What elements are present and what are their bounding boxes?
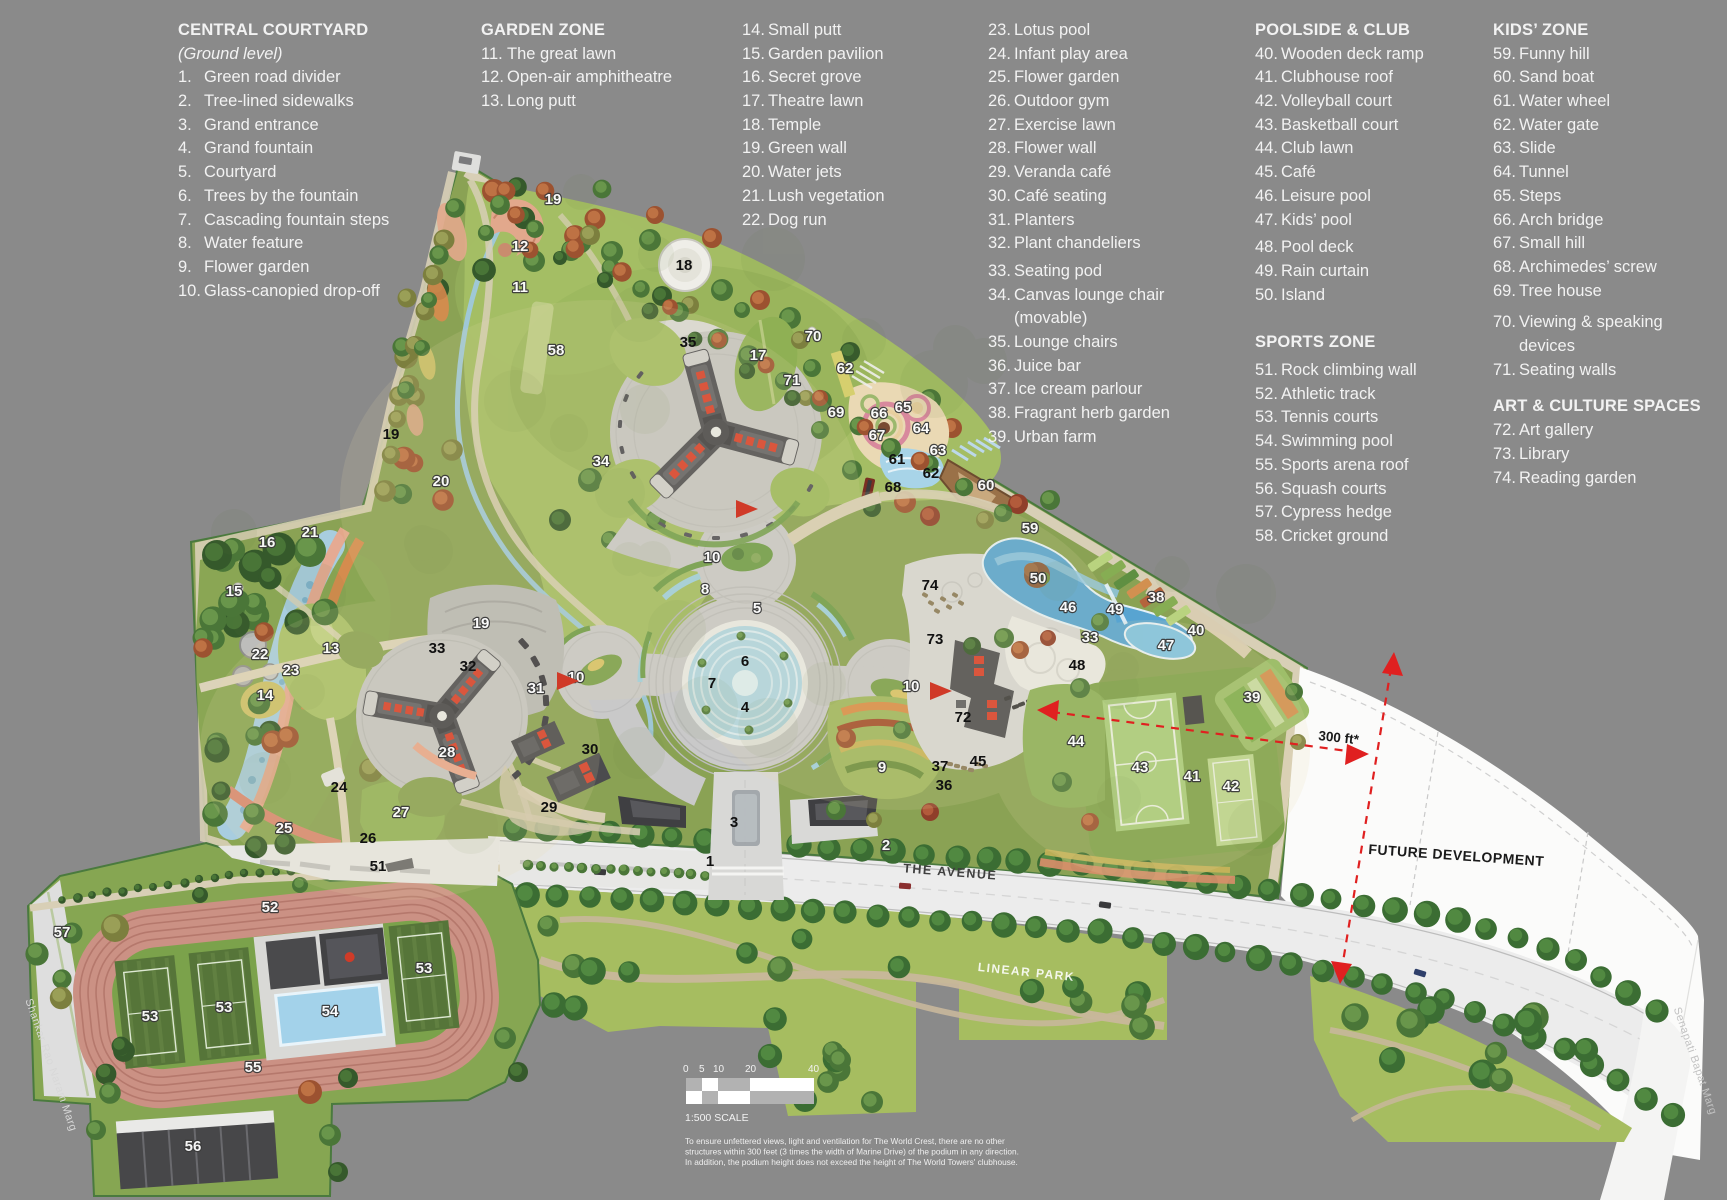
- svg-text:14: 14: [257, 687, 274, 704]
- svg-text:28: 28: [439, 744, 456, 761]
- svg-text:33: 33: [1082, 629, 1099, 646]
- svg-text:1:500 SCALE: 1:500 SCALE: [685, 1112, 749, 1124]
- svg-text:35: 35: [680, 334, 697, 351]
- svg-text:19: 19: [545, 191, 562, 208]
- svg-text:structures within 300 feet (3: structures within 300 feet (3 times the …: [685, 1147, 1019, 1157]
- svg-text:57: 57: [54, 924, 71, 941]
- svg-text:40: 40: [808, 1064, 820, 1075]
- svg-text:1: 1: [706, 853, 714, 870]
- svg-text:10: 10: [704, 549, 721, 566]
- svg-text:16: 16: [259, 534, 276, 551]
- svg-text:67: 67: [869, 427, 886, 444]
- svg-text:39: 39: [1244, 689, 1261, 706]
- svg-text:3: 3: [730, 814, 738, 831]
- svg-text:53: 53: [216, 999, 233, 1016]
- svg-text:72: 72: [955, 709, 972, 726]
- svg-text:12: 12: [512, 238, 529, 255]
- svg-text:6: 6: [741, 653, 749, 670]
- svg-text:5: 5: [753, 600, 761, 617]
- svg-text:0: 0: [683, 1064, 689, 1075]
- svg-text:58: 58: [548, 342, 565, 359]
- svg-text:68: 68: [885, 479, 902, 496]
- svg-text:74: 74: [922, 577, 939, 594]
- svg-text:40: 40: [1188, 622, 1205, 639]
- svg-text:42: 42: [1223, 778, 1240, 795]
- svg-text:41: 41: [1184, 768, 1201, 785]
- svg-text:61: 61: [889, 451, 906, 468]
- svg-text:62: 62: [923, 465, 940, 482]
- svg-text:43: 43: [1132, 759, 1149, 776]
- svg-text:24: 24: [331, 779, 348, 796]
- svg-text:45: 45: [970, 753, 987, 770]
- svg-text:73: 73: [927, 631, 944, 648]
- svg-text:11: 11: [512, 279, 528, 296]
- svg-text:2: 2: [882, 837, 890, 854]
- svg-text:19: 19: [473, 615, 490, 632]
- svg-text:20: 20: [745, 1064, 757, 1075]
- svg-text:31: 31: [528, 680, 545, 697]
- svg-text:In addition, the podium height: In addition, the podium height does not …: [685, 1157, 1018, 1167]
- svg-text:38: 38: [1148, 589, 1165, 606]
- svg-text:21: 21: [302, 524, 319, 541]
- svg-text:53: 53: [142, 1008, 159, 1025]
- svg-text:46: 46: [1060, 599, 1077, 616]
- svg-text:59: 59: [1022, 520, 1039, 537]
- svg-text:60: 60: [978, 477, 995, 494]
- svg-text:63: 63: [930, 442, 947, 459]
- svg-text:17: 17: [750, 347, 767, 364]
- svg-text:51: 51: [370, 858, 387, 875]
- svg-text:22: 22: [252, 646, 269, 663]
- svg-text:50: 50: [1030, 570, 1047, 587]
- svg-text:53: 53: [416, 960, 433, 977]
- svg-text:To ensure unfettered views, li: To ensure unfettered views, light and ve…: [685, 1136, 1005, 1146]
- svg-text:69: 69: [828, 404, 845, 421]
- svg-text:4: 4: [741, 699, 750, 716]
- svg-text:56: 56: [185, 1138, 202, 1155]
- svg-text:10: 10: [903, 678, 920, 695]
- svg-text:15: 15: [226, 583, 243, 600]
- svg-text:70: 70: [805, 328, 822, 345]
- svg-text:10: 10: [713, 1064, 725, 1075]
- svg-text:62: 62: [837, 360, 854, 377]
- svg-text:55: 55: [245, 1059, 262, 1076]
- svg-text:44: 44: [1068, 733, 1085, 750]
- svg-text:49: 49: [1107, 601, 1124, 618]
- svg-text:65: 65: [895, 399, 912, 416]
- svg-text:27: 27: [393, 804, 410, 821]
- svg-text:5: 5: [699, 1064, 705, 1075]
- svg-text:20: 20: [433, 473, 450, 490]
- svg-text:23: 23: [283, 662, 300, 679]
- svg-text:71: 71: [784, 372, 801, 389]
- svg-text:13: 13: [323, 640, 340, 657]
- svg-text:18: 18: [676, 257, 693, 274]
- svg-text:32: 32: [460, 658, 477, 675]
- svg-text:66: 66: [871, 405, 888, 422]
- svg-text:7: 7: [708, 675, 716, 692]
- svg-text:47: 47: [1158, 637, 1175, 654]
- svg-text:37: 37: [932, 758, 949, 775]
- svg-text:34: 34: [593, 453, 610, 470]
- svg-text:29: 29: [541, 799, 558, 816]
- svg-text:64: 64: [913, 420, 930, 437]
- svg-text:52: 52: [262, 899, 279, 916]
- svg-text:19: 19: [383, 426, 400, 443]
- svg-text:26: 26: [360, 830, 377, 847]
- svg-text:33: 33: [429, 640, 446, 657]
- svg-text:36: 36: [936, 777, 953, 794]
- svg-text:9: 9: [878, 759, 886, 776]
- svg-text:8: 8: [701, 581, 709, 598]
- svg-text:25: 25: [276, 820, 293, 837]
- svg-text:30: 30: [582, 741, 599, 758]
- svg-text:48: 48: [1069, 657, 1086, 674]
- svg-text:54: 54: [322, 1003, 339, 1020]
